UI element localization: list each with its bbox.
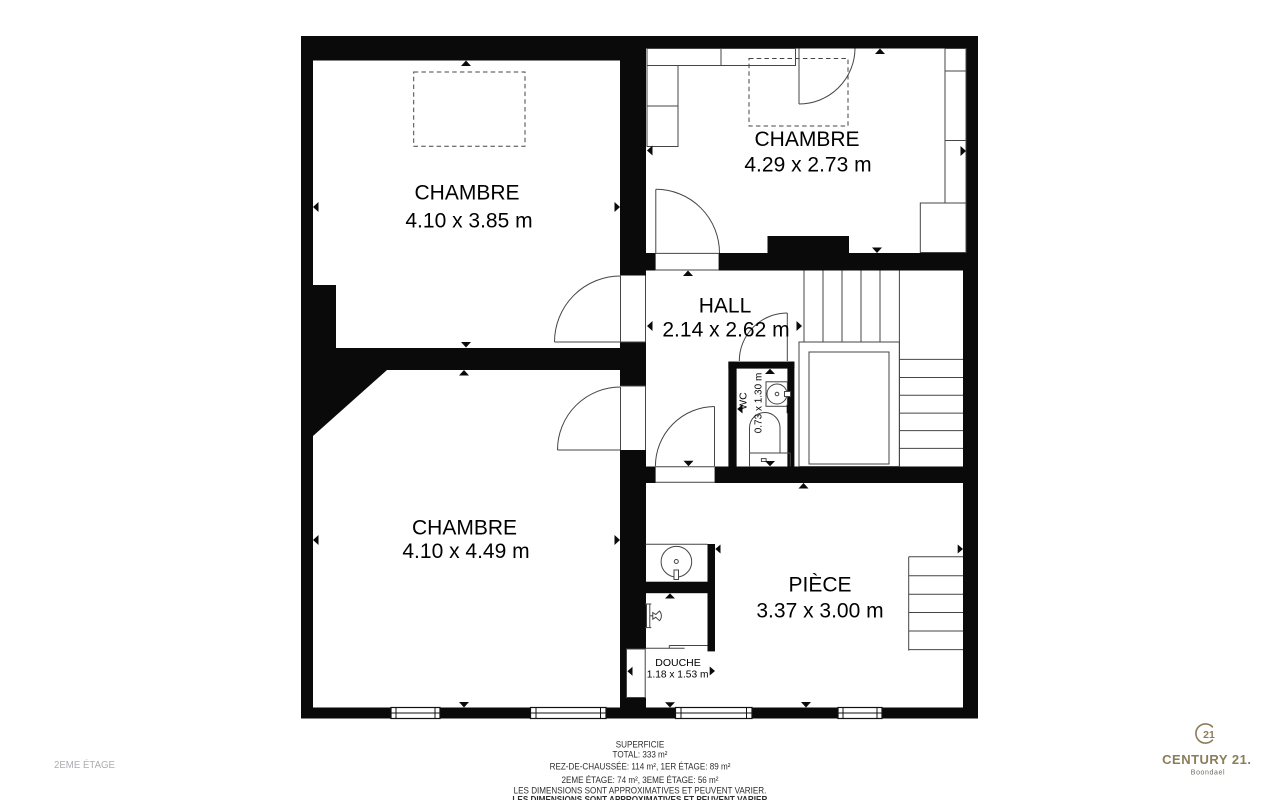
svg-text:1.18 x 1.53 m: 1.18 x 1.53 m [647,670,709,681]
svg-text:WC: WC [737,392,749,410]
svg-text:TOTAL: 333 m²: TOTAL: 333 m² [613,749,668,760]
svg-text:4.29 x 2.73 m: 4.29 x 2.73 m [744,154,871,177]
svg-text:CHAMBRE: CHAMBRE [414,182,519,205]
svg-text:2.14 x 2.62 m: 2.14 x 2.62 m [662,319,789,342]
svg-text:PIÈCE: PIÈCE [788,574,851,597]
svg-text:CHAMBRE: CHAMBRE [754,128,859,151]
svg-text:SUPERFICIE: SUPERFICIE [616,739,665,750]
svg-text:4.10 x 3.85 m: 4.10 x 3.85 m [405,210,532,233]
svg-text:CHAMBRE: CHAMBRE [412,517,517,540]
svg-text:4.10 x 4.49 m: 4.10 x 4.49 m [402,540,529,563]
svg-text:0.73 x 1.30 m: 0.73 x 1.30 m [754,373,765,434]
svg-text:2EME ÉTAGE: 2EME ÉTAGE [54,758,115,772]
svg-text:CENTURY 21.: CENTURY 21. [1162,752,1251,767]
svg-text:DOUCHE: DOUCHE [655,657,701,669]
svg-text:Boondael: Boondael [1191,770,1225,777]
svg-text:HALL: HALL [699,295,752,318]
svg-text:2EME ÉTAGE: 74 m², 3EME ÉTAGE:: 2EME ÉTAGE: 74 m², 3EME ÉTAGE: 56 m² [562,775,719,786]
svg-text:LES DIMENSIONS SONT APPROXIMAT: LES DIMENSIONS SONT APPROXIMATIVES ET PE… [512,794,769,800]
svg-text:3.37 x 3.00 m: 3.37 x 3.00 m [756,600,883,623]
svg-text:REZ-DE-CHAUSSÉE: 114 m², 1ER É: REZ-DE-CHAUSSÉE: 114 m², 1ER ÉTAGE: 89 m… [550,761,731,772]
svg-text:21: 21 [1203,729,1215,741]
